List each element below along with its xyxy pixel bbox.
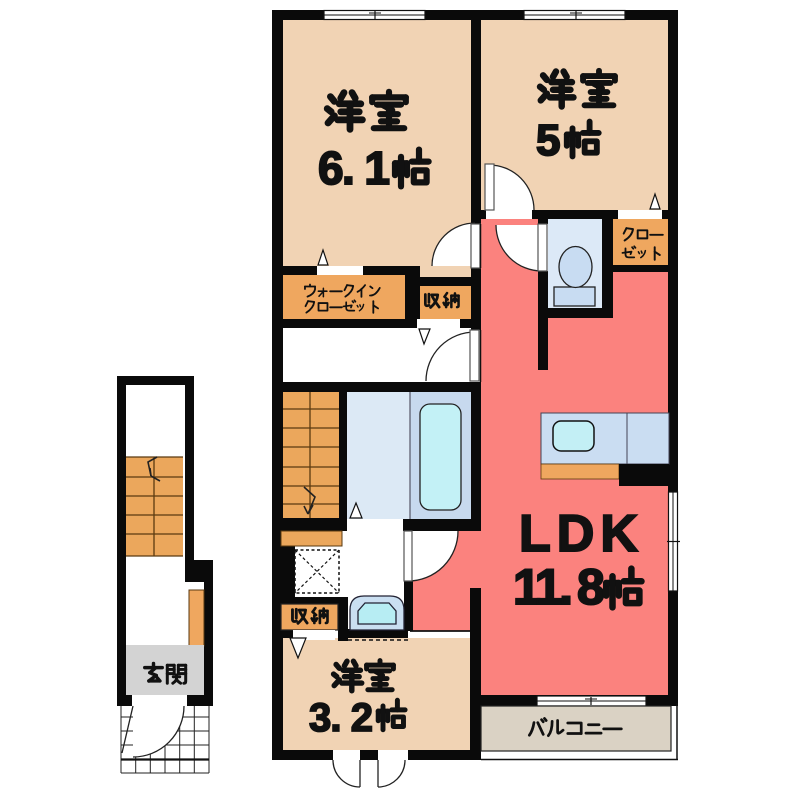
svg-text:6. 1: 6. 1 [318, 142, 390, 194]
svg-text:3. 2: 3. 2 [309, 696, 373, 740]
svg-text:LDK: LDK [519, 505, 644, 563]
svg-text:11.: 11. [513, 559, 573, 615]
svg-text:8: 8 [577, 559, 605, 615]
svg-text:5: 5 [536, 116, 560, 165]
